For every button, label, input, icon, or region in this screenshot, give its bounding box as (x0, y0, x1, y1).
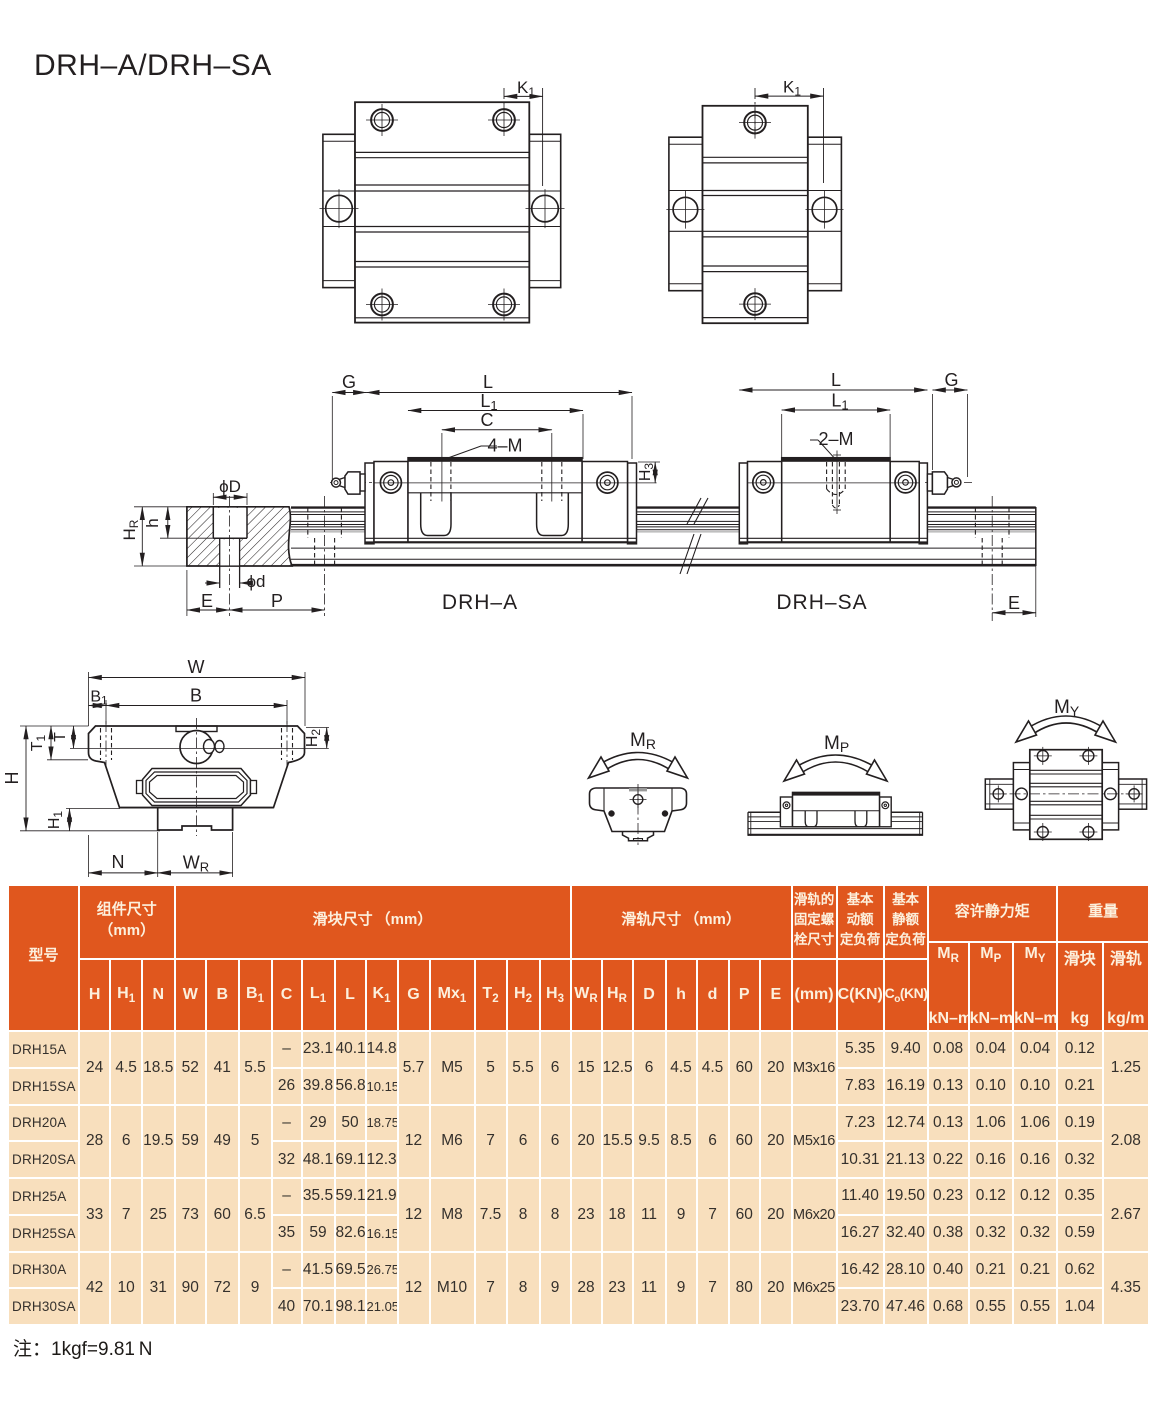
svg-text:B1: B1 (90, 689, 108, 708)
svg-text:DRH–A: DRH–A (442, 591, 518, 614)
svg-text:L1: L1 (831, 391, 848, 413)
svg-text:MY: MY (1054, 697, 1080, 719)
svg-text:L: L (831, 370, 841, 390)
svg-text:H3: H3 (637, 463, 656, 482)
svg-text:K1: K1 (517, 78, 535, 99)
svg-text:E: E (1008, 593, 1020, 613)
svg-text:P: P (271, 591, 283, 611)
svg-text:N: N (112, 852, 125, 872)
svg-text:C: C (481, 410, 494, 430)
svg-text:2–M: 2–M (818, 429, 853, 449)
svg-text:K1: K1 (783, 78, 801, 99)
svg-text:B: B (190, 686, 202, 706)
svg-text:T: T (52, 732, 69, 742)
svg-text:4–M: 4–M (487, 436, 522, 456)
svg-text:MP: MP (824, 733, 849, 755)
svg-text:WR: WR (183, 853, 209, 875)
svg-text:L: L (483, 372, 493, 392)
svg-text:DRH–SA: DRH–SA (776, 591, 867, 614)
svg-text:T1: T1 (29, 734, 48, 751)
svg-text:H: H (2, 772, 22, 785)
svg-text:ϕd: ϕd (247, 572, 266, 591)
svg-text:HR: HR (120, 519, 141, 540)
svg-text:H1: H1 (46, 811, 65, 830)
svg-text:E: E (201, 591, 213, 611)
svg-text:MR: MR (630, 730, 656, 752)
svg-text:ϕD: ϕD (219, 477, 241, 496)
svg-text:h: h (143, 518, 162, 527)
svg-text:G: G (944, 370, 958, 390)
svg-text:H2: H2 (304, 729, 323, 748)
svg-text:W: W (188, 657, 205, 677)
svg-text:G: G (342, 372, 356, 392)
